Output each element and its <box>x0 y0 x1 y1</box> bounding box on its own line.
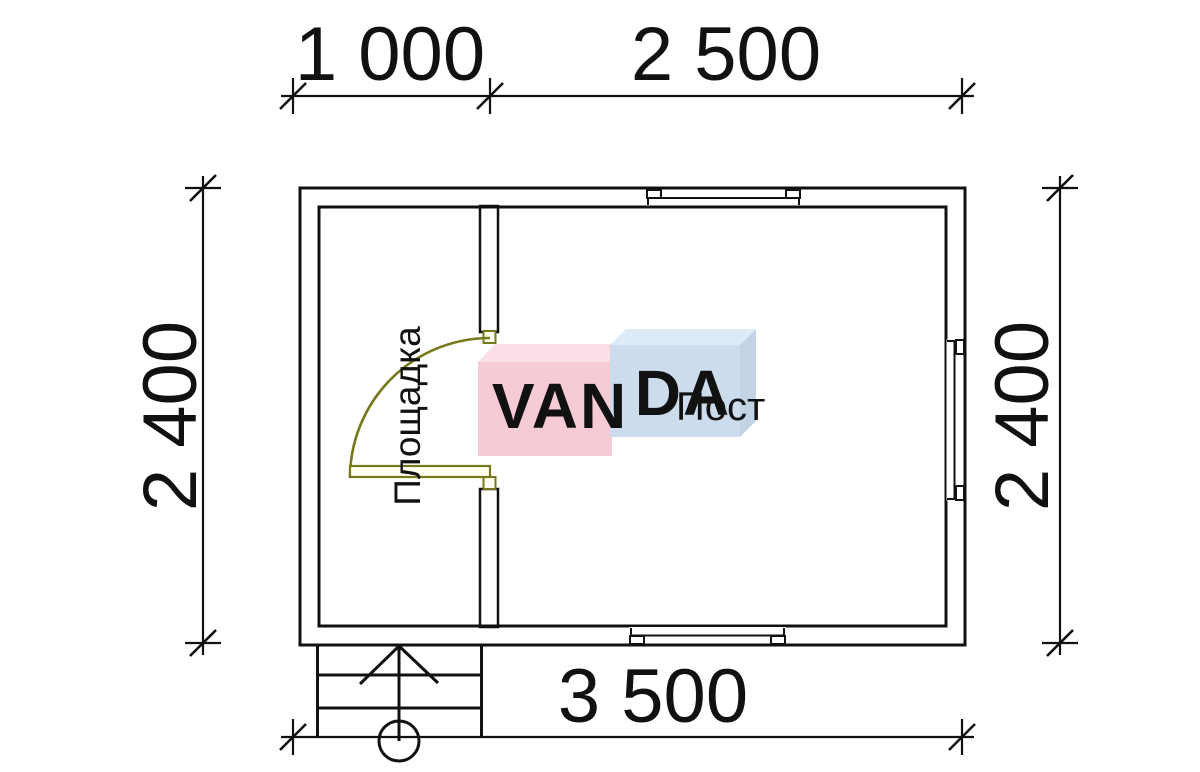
entry-stairs <box>317 645 482 761</box>
floor-plan-canvas: VAN DA 1 000 2 500 <box>0 0 1200 772</box>
window-right-bottom-jamb <box>956 486 964 500</box>
watermark-text-van: VAN <box>492 370 628 442</box>
dimension-right: 2 400 <box>980 175 1078 656</box>
window-bottom-left-jamb <box>630 636 644 644</box>
window-top-right-jamb <box>786 190 800 198</box>
dimension-bottom: 3 500 <box>280 654 975 755</box>
window-bottom-right-jamb <box>771 636 785 644</box>
room-label-porch: Площадка <box>387 326 428 506</box>
dimension-left: 2 400 <box>128 175 221 656</box>
dimension-label-3500: 3 500 <box>558 654 748 739</box>
dimension-label-2500: 2 500 <box>631 12 821 97</box>
window-right <box>947 340 965 501</box>
window-top <box>647 190 801 206</box>
dimension-top: 1 000 2 500 <box>280 12 975 114</box>
dimension-label-2400-right: 2 400 <box>980 321 1065 511</box>
room-label-post: Пост <box>676 385 765 429</box>
dimension-label-2400-left: 2 400 <box>128 321 213 511</box>
watermark-blue-top-face <box>610 329 756 345</box>
watermark-pink-top-face <box>478 344 629 362</box>
window-right-top-jamb <box>956 340 964 354</box>
window-top-left-jamb <box>647 190 661 198</box>
floor-plan-page: VAN DA 1 000 2 500 <box>0 0 1200 772</box>
dimension-label-1000: 1 000 <box>295 12 485 97</box>
window-bottom <box>630 627 786 644</box>
door-jamb-bottom <box>484 477 496 489</box>
